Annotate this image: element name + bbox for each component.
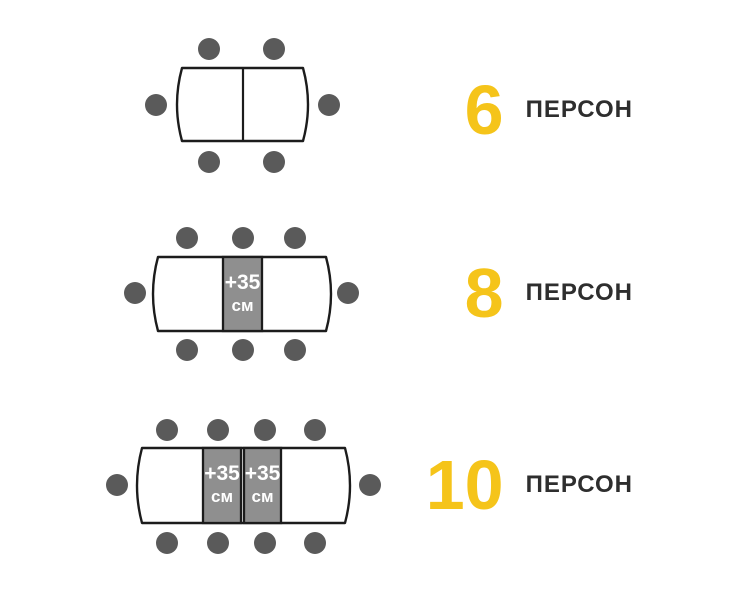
- leaf-unit-label: см: [231, 296, 253, 315]
- table-diagram-10-persons: +35 см +35 см: [90, 410, 395, 570]
- seat-icon: [232, 227, 254, 249]
- seat-icon: [263, 38, 285, 60]
- leaf-unit-label: см: [211, 487, 233, 506]
- leaf-unit-label: см: [251, 487, 273, 506]
- seat-icon: [156, 419, 178, 441]
- extension-leaf: +35 см: [244, 448, 281, 523]
- extension-leaf: +35 см: [223, 257, 262, 331]
- extension-leaf: +35 см: [203, 448, 241, 523]
- persons-count: 10: [426, 450, 504, 520]
- seat-icon: [254, 419, 276, 441]
- extension-leaf-rect: [223, 257, 262, 331]
- seat-icon: [318, 94, 340, 116]
- leaf-size-label: +35: [225, 271, 261, 294]
- seat-icon: [106, 474, 128, 496]
- seat-icon: [337, 282, 359, 304]
- seat-icon: [198, 151, 220, 173]
- leaf-size-label: +35: [204, 462, 240, 485]
- extension-leaf-rect: [203, 448, 241, 523]
- seat-icon: [198, 38, 220, 60]
- seat-icon: [124, 282, 146, 304]
- persons-label-10: 10 ПЕРСОН: [426, 450, 633, 520]
- seat-icon: [176, 339, 198, 361]
- persons-count: 6: [465, 75, 504, 145]
- persons-label-6: 6 ПЕРСОН: [465, 75, 633, 145]
- seat-icon: [207, 532, 229, 554]
- persons-word: ПЕРСОН: [526, 471, 633, 499]
- seat-icon: [284, 227, 306, 249]
- seat-icon: [284, 339, 306, 361]
- leaf-size-label: +35: [245, 462, 281, 485]
- seat-icon: [359, 474, 381, 496]
- table-seating-infographic: 6 ПЕРСОН +35 см 8 ПЕРСОН: [0, 0, 748, 595]
- persons-word: ПЕРСОН: [526, 279, 633, 307]
- seat-icon: [176, 227, 198, 249]
- persons-label-8: 8 ПЕРСОН: [465, 258, 633, 328]
- table-diagram-6-persons: [130, 25, 360, 180]
- seat-icon: [263, 151, 285, 173]
- seat-icon: [304, 532, 326, 554]
- persons-count: 8: [465, 258, 504, 328]
- seat-icon: [304, 419, 326, 441]
- extension-leaf-rect: [244, 448, 281, 523]
- seat-icon: [207, 419, 229, 441]
- table-diagram-8-persons: +35 см: [110, 220, 375, 370]
- persons-word: ПЕРСОН: [526, 96, 633, 124]
- seat-icon: [145, 94, 167, 116]
- seat-icon: [156, 532, 178, 554]
- seat-icon: [254, 532, 276, 554]
- seat-icon: [232, 339, 254, 361]
